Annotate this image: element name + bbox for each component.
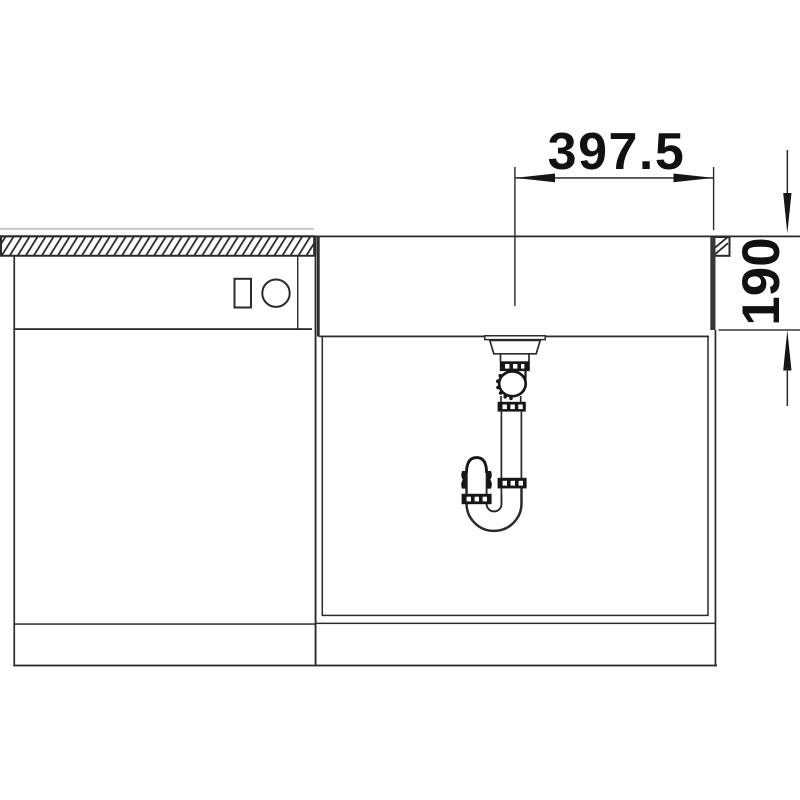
svg-text:190: 190 [732, 237, 791, 325]
svg-text:397.5: 397.5 [548, 123, 686, 181]
